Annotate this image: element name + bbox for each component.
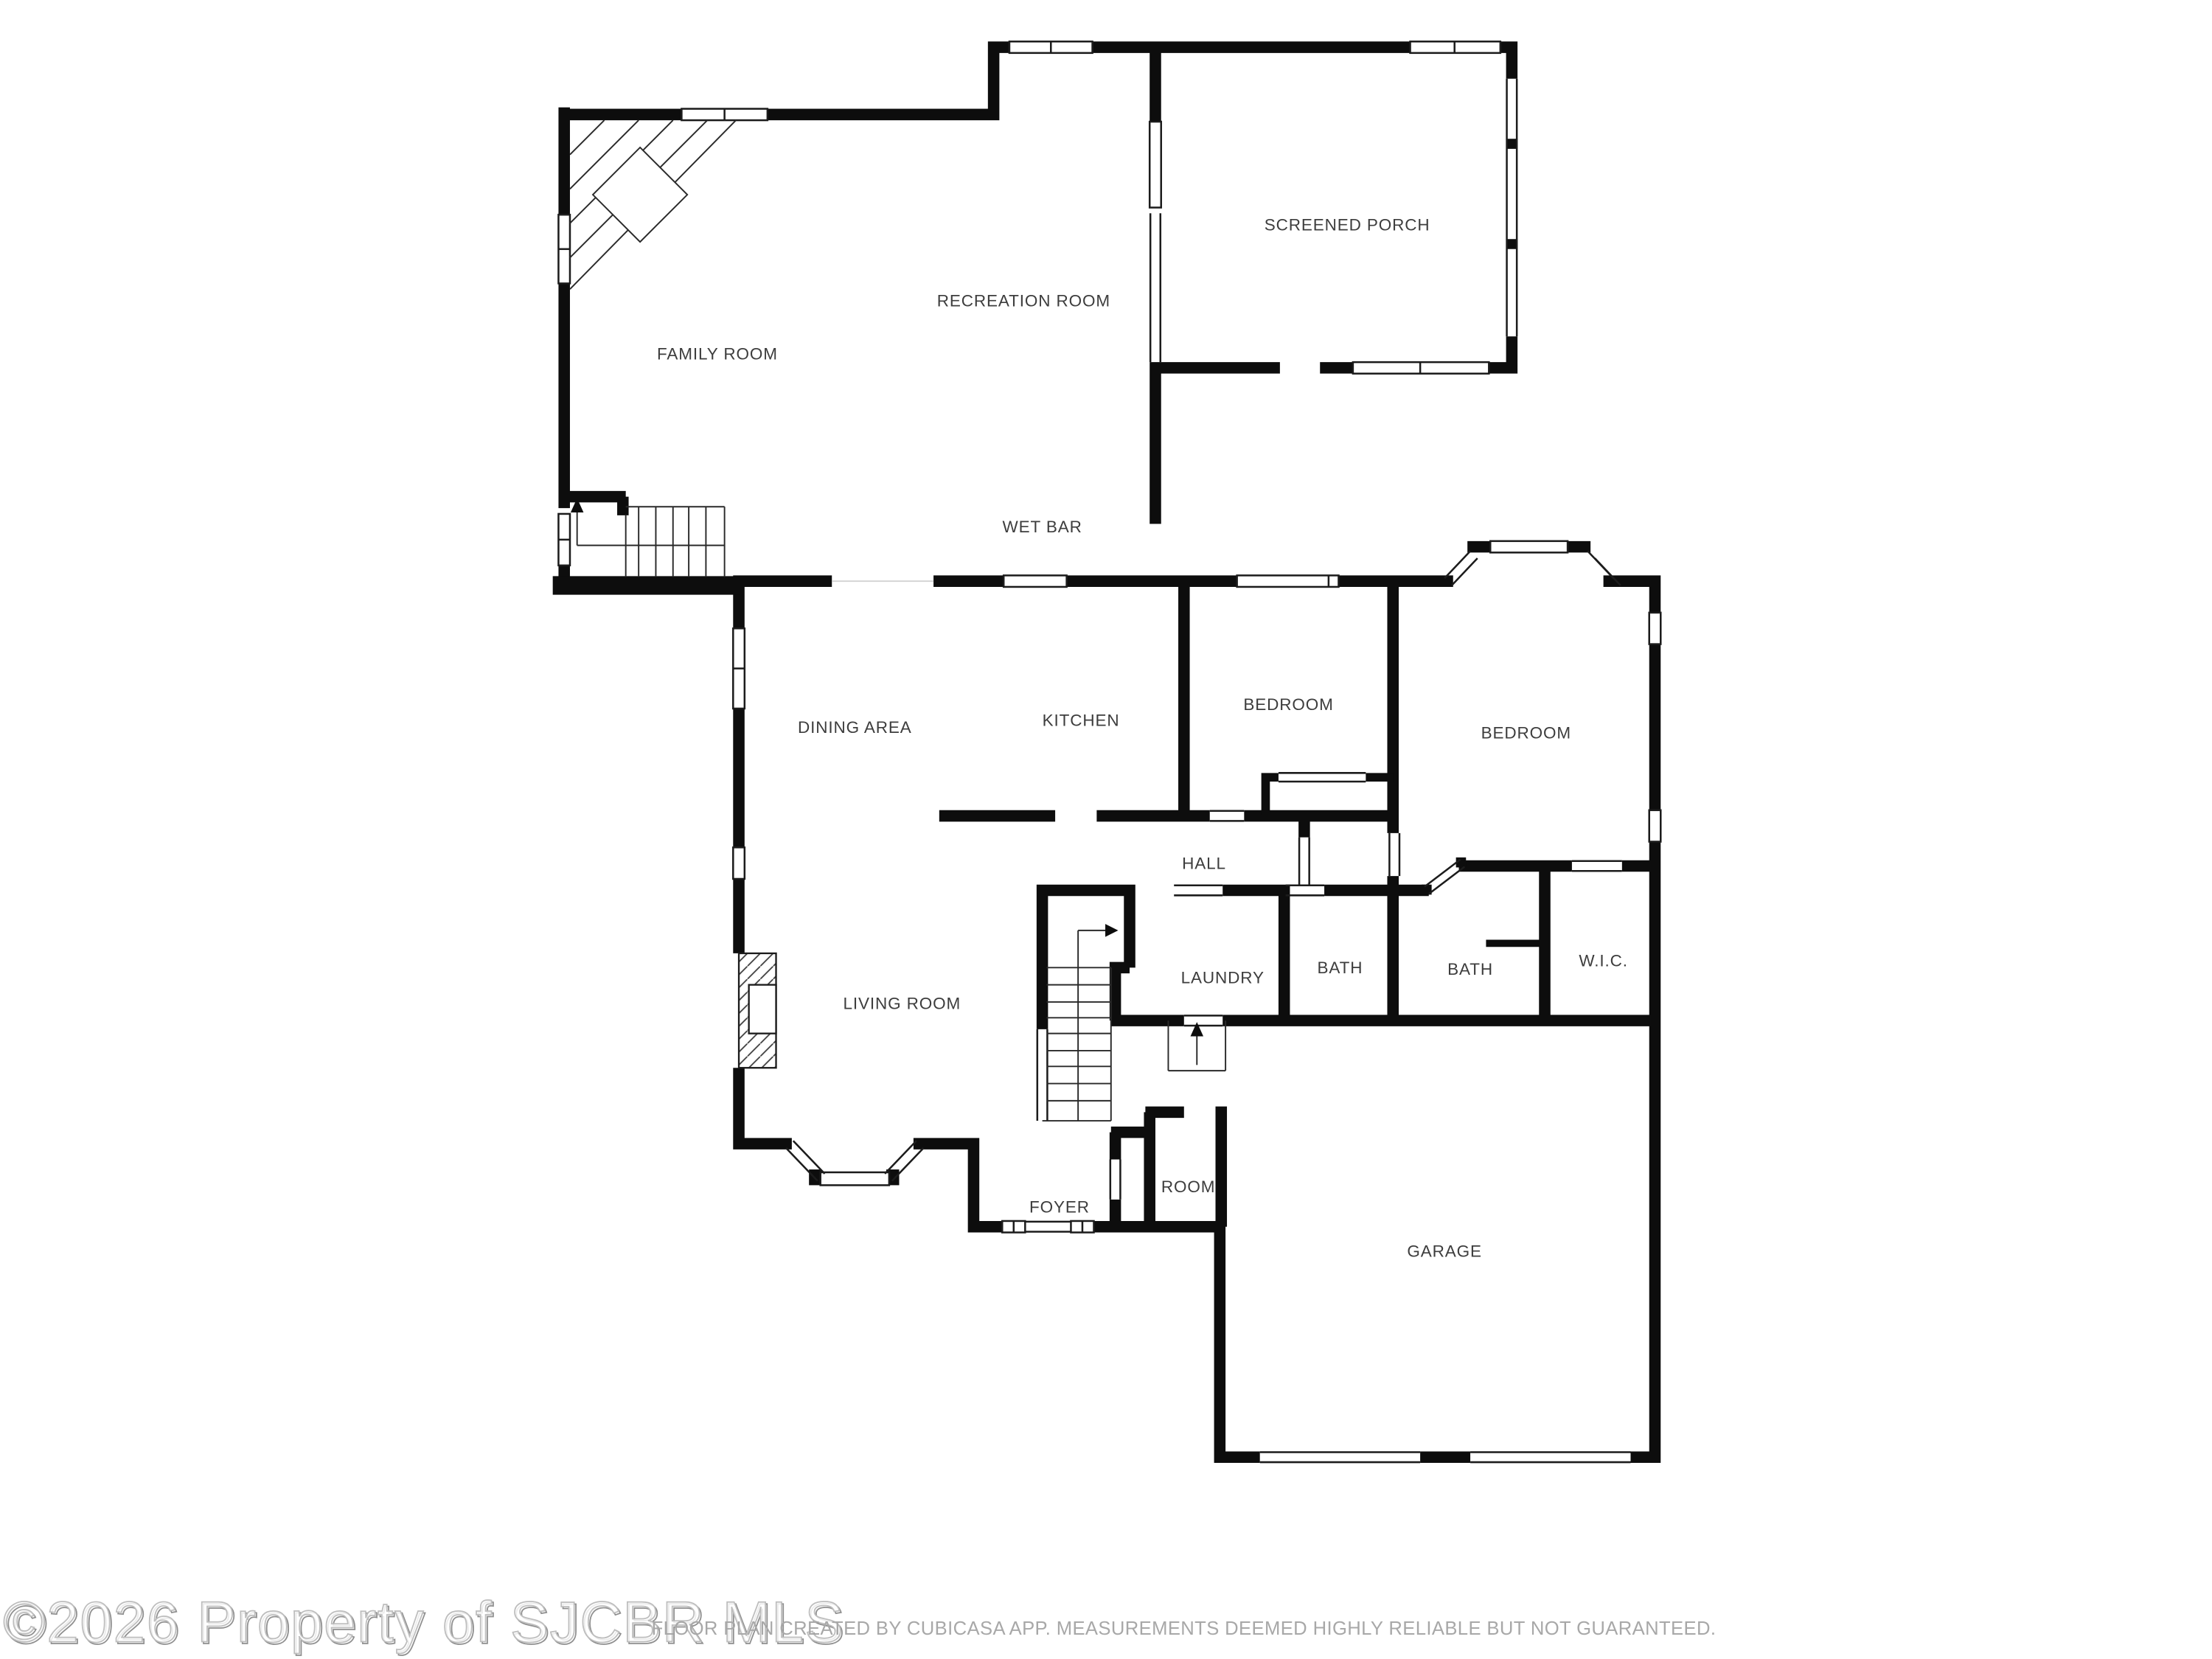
room-label-dining-area: DINING AREA — [798, 718, 912, 737]
room-label-recreation-room: RECREATION ROOM — [937, 291, 1110, 310]
room-label-bedroom-1: BEDROOM — [1243, 695, 1333, 714]
room-label-room: ROOM — [1161, 1178, 1216, 1196]
window — [1150, 122, 1161, 207]
room-label-bath-1: BATH — [1317, 959, 1363, 977]
window — [1649, 810, 1661, 842]
room-label-wet-bar: WET BAR — [1003, 518, 1082, 536]
window — [1649, 613, 1661, 644]
room-label-bedroom-2: BEDROOM — [1481, 724, 1571, 742]
bedroom-closet-walls — [1262, 777, 1394, 815]
exterior-and-interior-walls — [553, 41, 1661, 1463]
bay-window — [1490, 541, 1568, 553]
window — [733, 847, 745, 879]
room-label-garage: GARAGE — [1407, 1242, 1482, 1260]
room-label-bath-2: BATH — [1447, 960, 1493, 978]
fireplace — [739, 953, 776, 1068]
window — [1004, 575, 1066, 587]
room-label-screened-porch: SCREENED PORCH — [1265, 216, 1430, 234]
room-label-family-room: FAMILY ROOM — [657, 344, 778, 363]
family-room-stairs — [571, 498, 725, 577]
windows — [558, 41, 1660, 1232]
room-label-wic: W.I.C. — [1579, 951, 1628, 970]
basement-stairs — [1168, 1020, 1225, 1071]
doors-and-screens — [786, 79, 1630, 1462]
up-arrow-icon — [571, 498, 583, 546]
room-label-hall: HALL — [1182, 854, 1226, 872]
floor-plan: SCREENED PORCH RECREATION ROOM FAMILY RO… — [0, 0, 2212, 1659]
bay-window — [821, 1172, 889, 1185]
corner-winder-stairs — [570, 120, 736, 289]
room-label-laundry: LAUNDRY — [1181, 969, 1265, 987]
window — [1237, 575, 1339, 587]
disclaimer-text: FLOOR PLAN CREATED BY CUBICASA APP. MEAS… — [652, 1618, 1717, 1639]
room-label-foyer: FOYER — [1029, 1197, 1090, 1216]
room-label-kitchen: KITCHEN — [1043, 711, 1120, 729]
room-label-living-room: LIVING ROOM — [844, 995, 961, 1013]
main-stairs — [1043, 924, 1119, 1121]
up-arrow-icon — [1191, 1022, 1203, 1065]
up-arrow-icon — [1078, 924, 1118, 936]
